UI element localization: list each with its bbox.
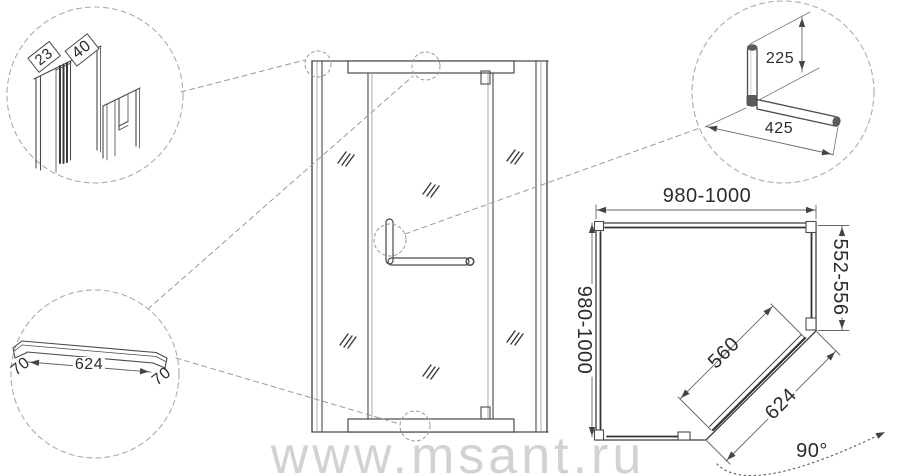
- dim-label-handle-225: 225: [766, 51, 794, 67]
- dim-label-handle-425: 425: [763, 121, 795, 137]
- dim-label-plan-top-width: 980-1000: [663, 186, 752, 206]
- detail-profile-drawing: [34, 46, 140, 172]
- dim-label-plan-left-depth: 980-1000: [574, 284, 594, 377]
- shower-enclosure-technical-drawing: 23 40 70 624 70 225 425 980-1000 980-100…: [0, 0, 900, 476]
- dim-label-plan-angle-90: 90°: [796, 441, 828, 461]
- dim-label-plan-right-side: 552-556: [830, 237, 850, 318]
- bottom-pivot-bracket: [481, 407, 490, 419]
- leader-lines: [148, 60, 700, 424]
- callout-circles: [305, 51, 440, 441]
- door-handle: [386, 219, 474, 265]
- front-view: [305, 51, 548, 441]
- detail-circle-handle: [692, 1, 874, 183]
- watermark: www.msant.ru: [271, 426, 646, 476]
- dim-label-sill-624: 624: [73, 357, 105, 373]
- detail-circle-profile: [7, 7, 183, 183]
